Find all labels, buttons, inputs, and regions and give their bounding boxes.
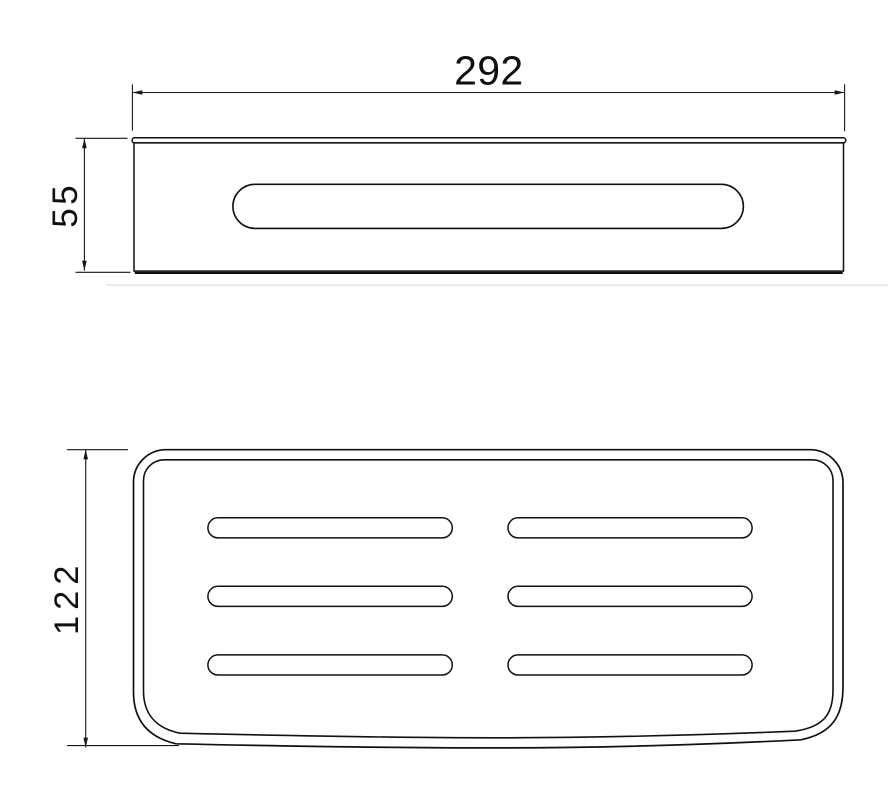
svg-text:55: 55: [46, 182, 85, 228]
svg-text:292: 292: [454, 48, 523, 94]
svg-text:122: 122: [48, 560, 86, 635]
